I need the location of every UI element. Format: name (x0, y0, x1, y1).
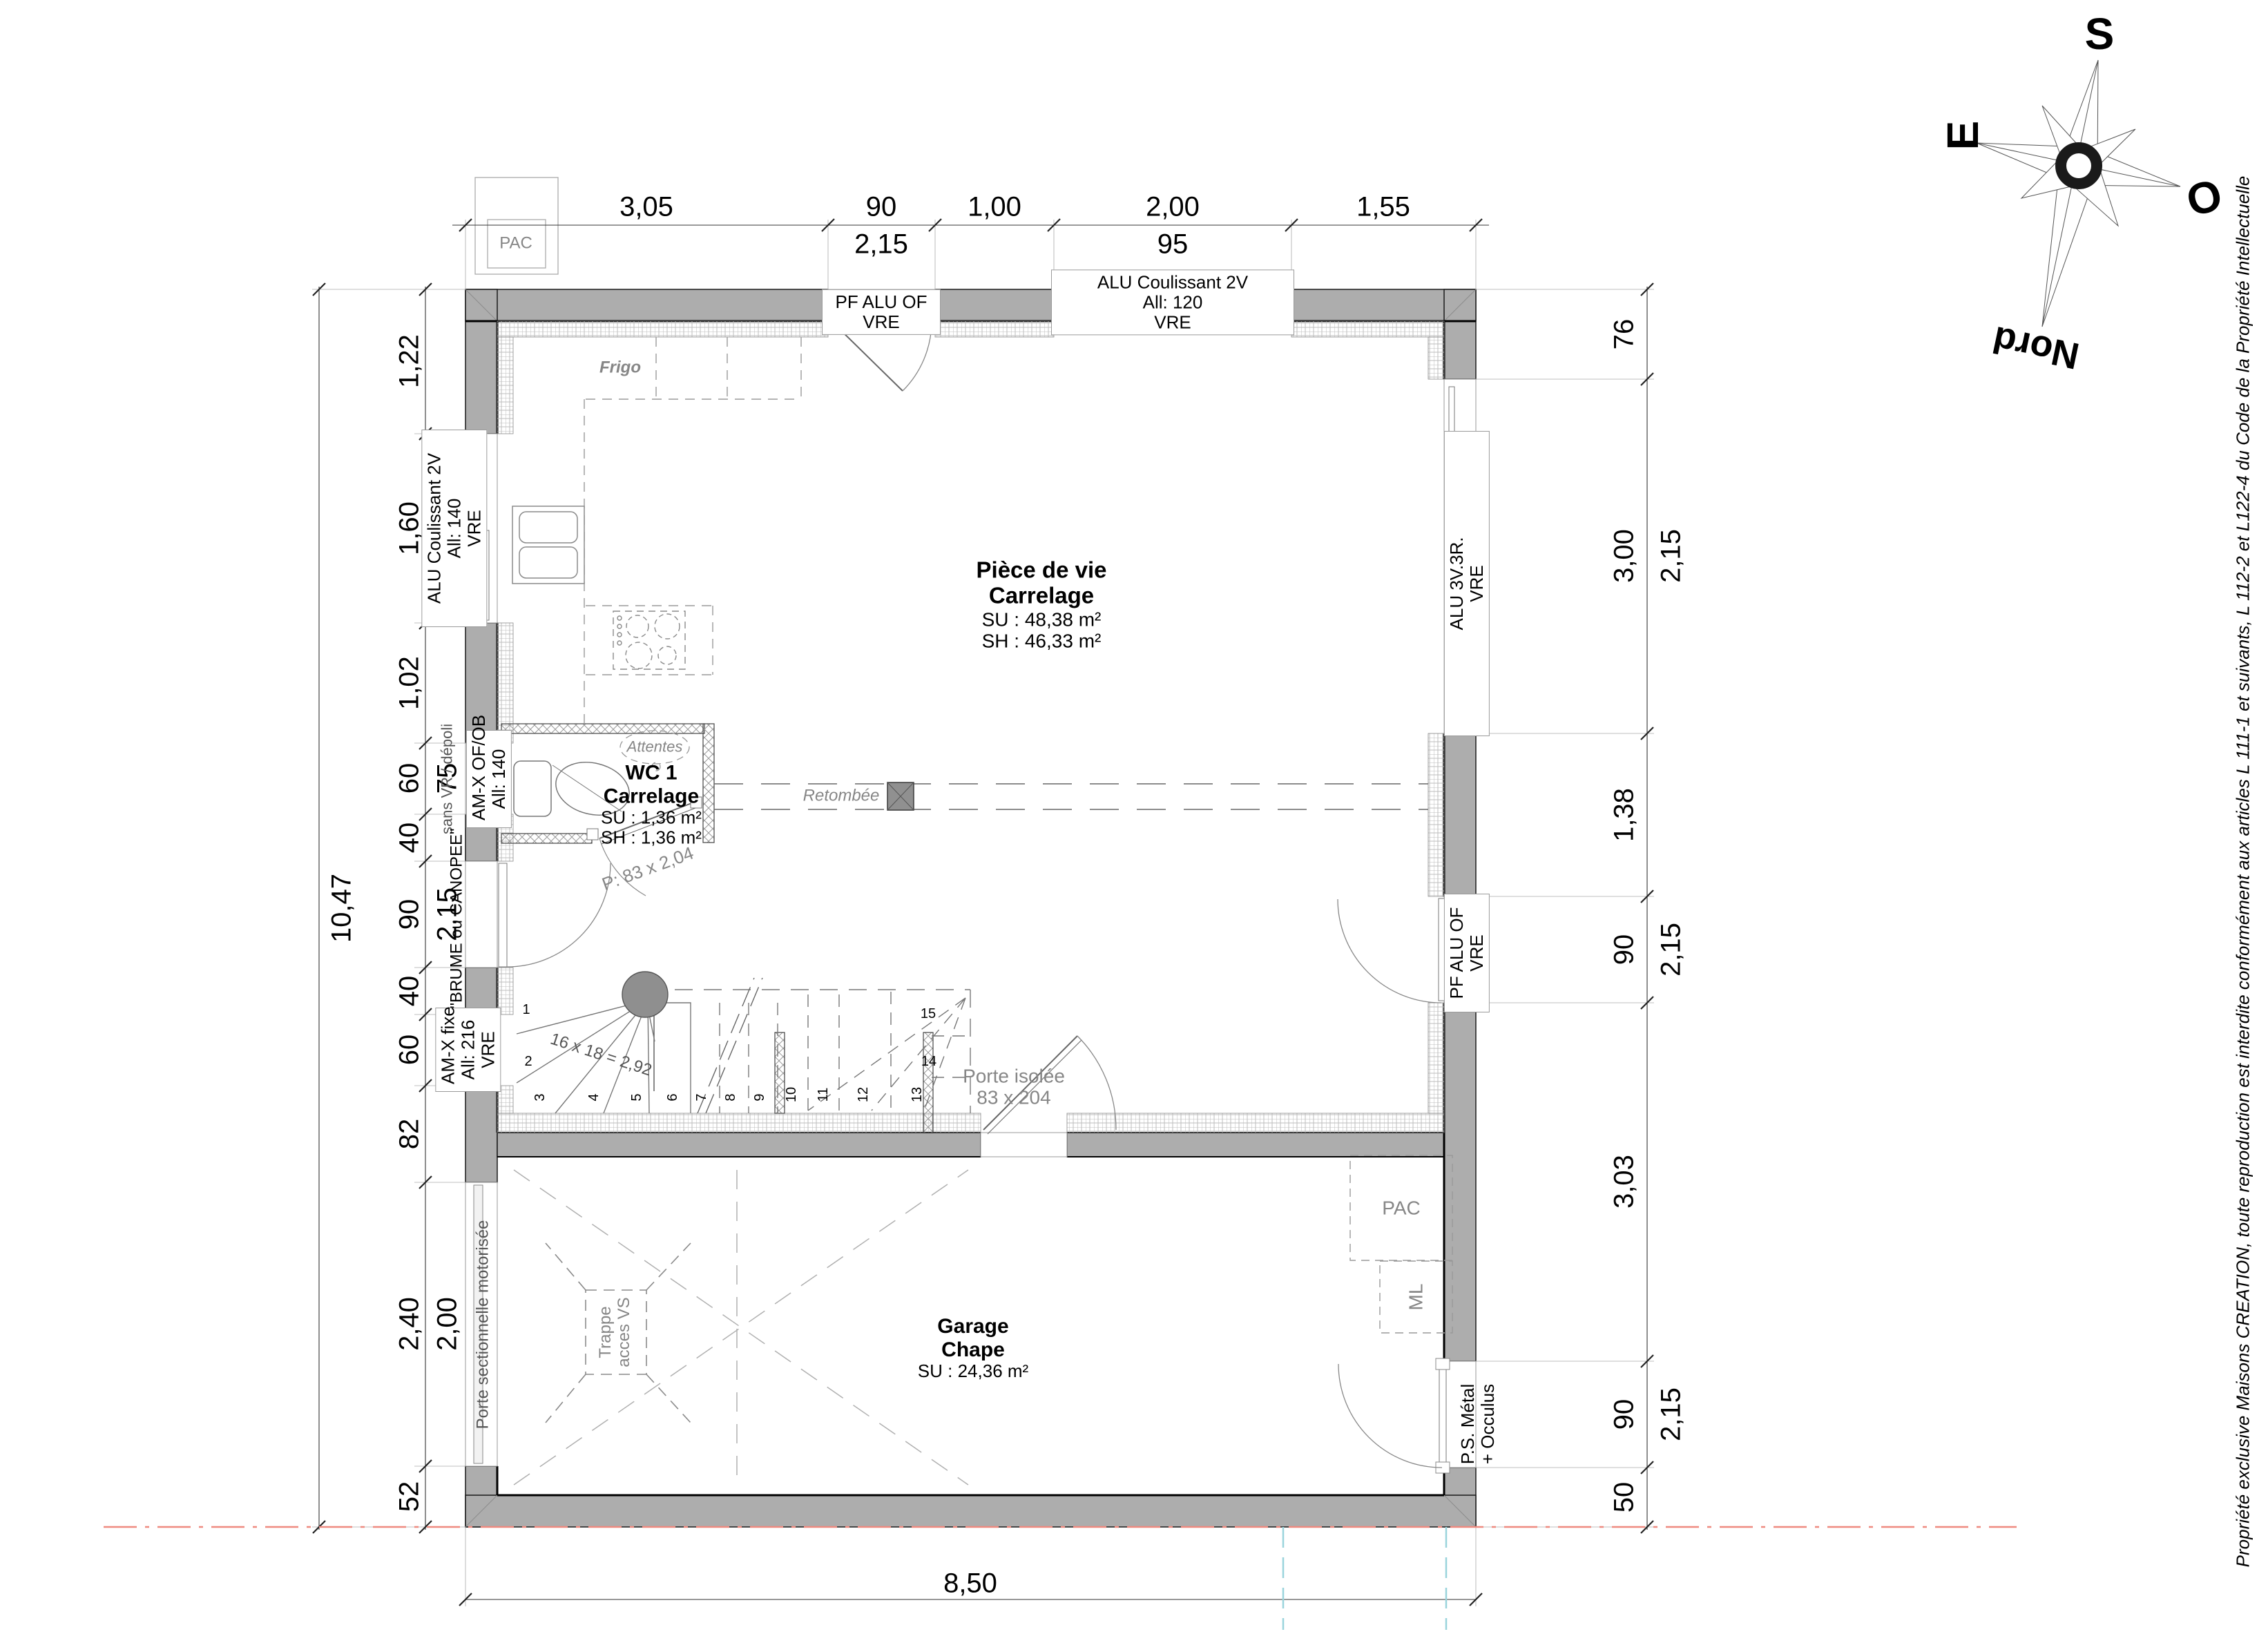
cooktop (613, 611, 685, 669)
step-number: 4 (586, 1093, 602, 1101)
floor-plan-page: 3,05 90 2,15 1,00 2,00 95 1,55 1,22 1,60… (0, 0, 2268, 1634)
step-number: 15 (921, 1006, 936, 1021)
label-line: VRE (1467, 439, 1487, 729)
pac-exterior-label: PAC (499, 235, 532, 253)
label-line: + Occulus (1478, 1384, 1498, 1465)
dim-left-10-sub: 2,00 (432, 1297, 463, 1351)
dim-left-10: 2,40 (394, 1297, 425, 1351)
entry-door-label: "BRUME ou CANOPEE" (448, 828, 467, 1008)
entry-door-left (465, 861, 611, 968)
step-number: 3 (532, 1093, 548, 1101)
label-line: ALU Coulissant 2V (424, 437, 444, 619)
post (887, 782, 914, 810)
step-number: 1 (522, 1002, 530, 1017)
dim-right-6-sub: 2,15 (1656, 1387, 1687, 1441)
label-line: AM-X OF/OB (469, 738, 489, 820)
dim-right-7: 50 (1609, 1482, 1640, 1513)
pac-garage-outline (1350, 1155, 1452, 1333)
dim-left-3: 1,02 (394, 656, 425, 710)
step-number: 13 (910, 1087, 925, 1102)
garage-slab-cross (514, 1170, 968, 1485)
right-window-label: ALU 3V.3R. VRE (1444, 431, 1490, 736)
top-slider-label: ALU Coulissant 2V All: 120 VRE (1051, 269, 1294, 335)
label-line: VRE (479, 1015, 499, 1084)
wc-room-label: WC 1 Carrelage SU : 1,36 m² SH : 1,36 m² (601, 761, 702, 847)
room-title: Pièce de vie (977, 558, 1107, 584)
dim-top-5: 1,55 (1356, 192, 1410, 223)
crawlspace-hatch-label: Trappe acces VS (597, 1297, 634, 1367)
dim-right-4-sub: 2,15 (1656, 923, 1687, 977)
copyright-notice: Propriété exclusive Maisons CREATION, to… (2233, 176, 2253, 1568)
step-number: 7 (694, 1093, 709, 1101)
dim-overall-bottom: 8,50 (943, 1568, 997, 1599)
dim-left-11: 52 (394, 1481, 425, 1512)
label-line: acces VS (615, 1297, 634, 1367)
room-title: Garage (918, 1315, 1028, 1338)
dim-top-2: 90 (866, 192, 897, 223)
label-line: PF ALU OF (1447, 901, 1467, 1005)
step-number: 2 (524, 1054, 532, 1069)
dim-right-3: 1,38 (1609, 788, 1640, 842)
dim-top-4-sub: 95 (1157, 229, 1189, 260)
step-number: 6 (665, 1093, 680, 1101)
pac-garage-label: PAC (1382, 1197, 1421, 1218)
kitchen-sink (512, 506, 584, 584)
windows (465, 289, 1476, 1086)
label-line: VRE (1467, 901, 1487, 1005)
compass-rose (1977, 60, 2180, 327)
label-line: All: 140 (489, 738, 509, 820)
label-line: VRE (829, 312, 933, 332)
label-line: VRE (1059, 313, 1287, 333)
dim-left-8: 60 (394, 1035, 425, 1066)
room-title: WC 1 (601, 761, 702, 785)
dim-top-4: 2,00 (1146, 192, 1200, 223)
room-floor: Chape (918, 1338, 1028, 1361)
step-number: 11 (816, 1088, 831, 1102)
dim-left-4: 60 (394, 763, 425, 794)
washer-label: ML (1405, 1284, 1426, 1311)
left-fixed-label: AM-X fixe All: 216 VRE (435, 1008, 501, 1092)
dim-top-2-sub: 2,15 (854, 229, 908, 260)
interior-door-label: Porte isolée 83 x 204 (963, 1066, 1065, 1109)
kitchen-counters (584, 337, 801, 724)
top-door-label: PF ALU OF VRE (822, 289, 941, 335)
dim-left-9: 82 (394, 1119, 425, 1150)
label-line: All: 216 (458, 1015, 478, 1084)
label-line: AM-X fixe (438, 1015, 458, 1084)
left-slider-label: ALU Coulissant 2V All: 140 VRE (421, 430, 487, 627)
dim-overall-left: 10,47 (327, 874, 358, 943)
step-number: 5 (629, 1093, 644, 1101)
label-line: ALU 3V.3R. (1447, 439, 1467, 729)
room-floor: Carrelage (977, 584, 1107, 609)
step-number: 12 (856, 1087, 871, 1102)
label-line: ALU Coulissant 2V (1059, 272, 1287, 292)
label-line: Porte isolée (963, 1066, 1065, 1087)
dim-left-5: 40 (394, 823, 425, 854)
wc-window-note: sans VR / dépoli (439, 724, 457, 834)
floor-plan-drawing (0, 0, 2268, 1634)
dim-left-1: 1,22 (394, 334, 425, 388)
fridge-label: Frigo (599, 359, 641, 378)
step-number: 10 (784, 1087, 799, 1102)
room-su: SU : 24,36 m² (918, 1361, 1028, 1381)
dim-left-2: 1,60 (394, 501, 425, 555)
garage-service-door (1338, 1358, 1476, 1473)
dim-right-2-sub: 2,15 (1656, 529, 1687, 583)
dim-right-1: 76 (1609, 319, 1640, 350)
dim-right-2: 3,00 (1609, 529, 1640, 583)
dim-top-3: 1,00 (968, 192, 1021, 223)
room-floor: Carrelage (601, 785, 702, 808)
step-number: 14 (921, 1054, 936, 1069)
step-number: 8 (723, 1093, 738, 1101)
dim-left-6: 90 (394, 899, 425, 930)
label-line: Trappe (597, 1297, 615, 1367)
label-line: All: 140 (444, 437, 464, 619)
utility-lines (1283, 1527, 1446, 1630)
right-door-label: PF ALU OF VRE (1444, 894, 1490, 1012)
living-room-label: Pièce de vie Carrelage SU : 48,38 m² SH … (977, 558, 1107, 653)
dim-right-5: 3,03 (1609, 1155, 1640, 1209)
step-number: 9 (752, 1093, 767, 1101)
retombee-label: Retombée (803, 787, 880, 806)
room-sh: SH : 46,33 m² (977, 631, 1107, 652)
room-su: SU : 1,36 m² (601, 807, 702, 827)
label-line: VRE (465, 437, 485, 619)
pac-exterior-outline (475, 177, 558, 274)
attentes-label: Attentes (627, 739, 683, 756)
sectional-door-label: Porte sectionnelle motorisée (474, 1220, 493, 1430)
dim-top-1: 3,05 (619, 192, 673, 223)
service-door-label: P.S. Métal + Occulus (1458, 1384, 1498, 1465)
label-line: PF ALU OF (829, 292, 933, 312)
label-line: P.S. Métal (1458, 1384, 1478, 1465)
room-su: SU : 48,38 m² (977, 609, 1107, 631)
label-line: 83 x 204 (963, 1087, 1065, 1108)
dim-left-7: 40 (394, 976, 425, 1007)
label-line: All: 120 (1059, 292, 1287, 312)
room-sh: SH : 1,36 m² (601, 828, 702, 848)
compass-south: S (2085, 10, 2115, 59)
garage-room-label: Garage Chape SU : 24,36 m² (918, 1315, 1028, 1381)
compass-east: E (1939, 121, 1988, 151)
wc-window-label: AM-X OF/OB All: 140 (466, 730, 512, 828)
dim-right-6: 90 (1609, 1399, 1640, 1430)
dim-right-4: 90 (1609, 934, 1640, 965)
